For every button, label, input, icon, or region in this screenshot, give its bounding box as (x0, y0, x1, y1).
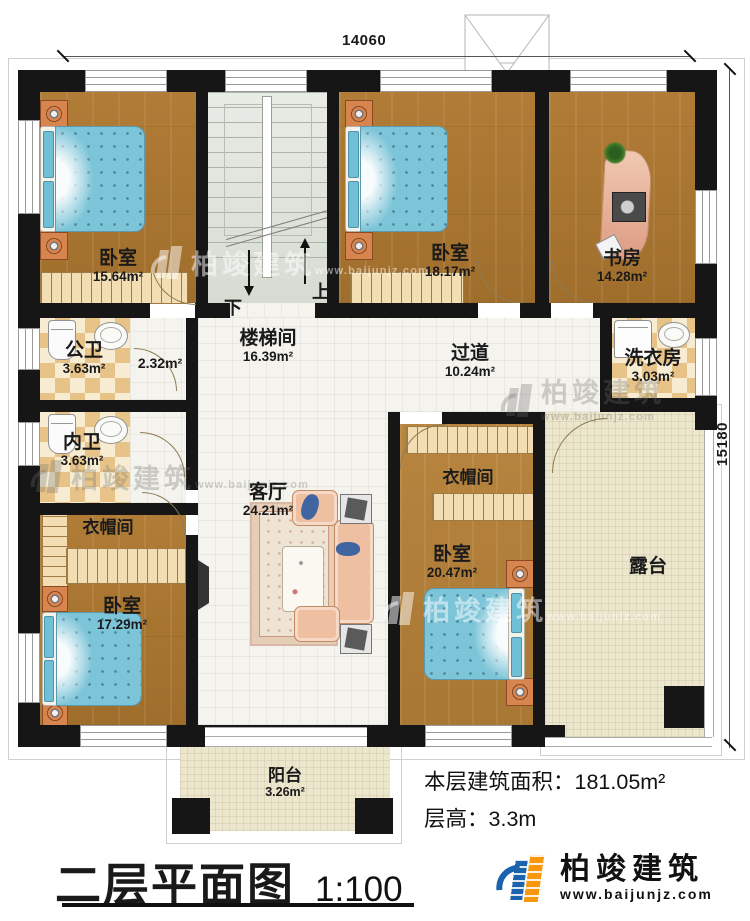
label-bedroom-bottom-left: 卧室 17.29m² (97, 596, 147, 632)
bed-pillow (43, 131, 54, 178)
window (695, 338, 717, 396)
stair-rail (262, 96, 272, 278)
label-bedroom-top-left: 卧室 15.64m² (93, 248, 143, 284)
terrace-railing (704, 430, 714, 737)
nightstand (506, 678, 534, 706)
bed-pillow (44, 616, 54, 658)
bed-pillow (348, 131, 359, 178)
stair-arrow-down (248, 250, 250, 288)
nightstand (40, 232, 68, 260)
window (18, 120, 40, 214)
person-figure (336, 542, 360, 556)
sliding-door (205, 727, 367, 747)
label-living-room: 客厅 24.21m² (243, 482, 293, 518)
label-bedroom-top-middle: 卧室 18.17m² (425, 243, 475, 279)
bed-pillow (511, 637, 522, 677)
wall (533, 412, 545, 745)
side-table (340, 494, 372, 524)
column (355, 798, 393, 834)
dimension-line-top (62, 56, 690, 57)
window (380, 70, 492, 92)
floor-plan: 柏竣建筑www.baijunjz.com 柏竣建筑www.baijunjz.co… (0, 0, 750, 921)
brand-name: 柏竣建筑 (560, 854, 713, 886)
tv (198, 560, 209, 610)
wall (535, 70, 549, 318)
title-underline (62, 903, 414, 907)
wall (442, 412, 545, 424)
window (18, 328, 40, 370)
label-cloakroom-right: 衣帽间 (443, 468, 494, 487)
roof-vent-icon (462, 12, 554, 78)
floor-height-annotation: 层高：3.3m (424, 802, 536, 833)
label-balcony: 阳台 3.26m² (265, 766, 305, 799)
label-stairwell: 楼梯间 16.39m² (239, 328, 296, 364)
plant-icon (604, 142, 626, 164)
cloak-rack (432, 493, 534, 521)
window (18, 422, 40, 466)
column (172, 798, 210, 834)
bed (55, 126, 145, 232)
cloak-rack (66, 548, 186, 584)
label-corridor: 过道 10.24m² (445, 343, 495, 379)
stair-label-up: 上 (312, 278, 330, 304)
nightstand (345, 232, 373, 260)
side-table (340, 624, 372, 654)
dimension-line-right (729, 70, 730, 748)
cloak-rack (42, 508, 68, 588)
wall (18, 303, 150, 318)
label-bath-lobby: 2.32m² (138, 356, 182, 372)
sink (658, 322, 690, 348)
stair-mouth (230, 303, 315, 318)
armchair (294, 606, 340, 642)
wall (186, 318, 198, 490)
brand-logo-icon (494, 850, 550, 906)
wall (186, 535, 198, 725)
dimension-top-value: 14060 (342, 32, 386, 49)
wall (18, 400, 186, 412)
window (425, 725, 512, 747)
nightstand (506, 560, 534, 588)
stair-arrow-up (304, 246, 306, 284)
bed-pillow (43, 181, 54, 228)
label-private-bath: 内卫 3.63m² (61, 432, 104, 468)
wall (520, 303, 551, 318)
sofa (334, 520, 374, 624)
floor-area-annotation: 本层建筑面积：181.05m² (424, 765, 665, 796)
window (225, 70, 307, 92)
bed-pillow (348, 181, 359, 228)
window (18, 633, 40, 703)
computer-monitor (612, 192, 646, 222)
label-bedroom-bottom-right: 卧室 20.47m² (427, 544, 477, 580)
label-terrace: 露台 (629, 556, 667, 577)
nightstand (42, 586, 68, 612)
window (695, 190, 717, 264)
brand-url: www.baijunjz.com (560, 886, 713, 902)
stair-label-down: 下 (224, 294, 242, 320)
label-cloakroom-left: 衣帽间 (83, 518, 134, 537)
dimension-right-value: 15180 (714, 422, 731, 466)
bed-pillow (44, 660, 54, 702)
bed-pillow (511, 593, 522, 633)
brand-logo: 柏竣建筑 www.baijunjz.com (494, 850, 713, 906)
bed (360, 126, 448, 232)
wall (388, 424, 400, 725)
nightstand (40, 100, 68, 128)
wall (196, 92, 208, 318)
wall (315, 303, 478, 318)
bed (424, 588, 510, 680)
stair-arrow-up-head (300, 238, 310, 248)
label-study: 书房 14.28m² (597, 248, 647, 284)
window (80, 725, 167, 747)
window (570, 70, 667, 92)
window (85, 70, 167, 92)
label-laundry: 洗衣房 3.03m² (624, 348, 681, 384)
coffee-table (282, 546, 324, 612)
nightstand (345, 100, 373, 128)
wall (388, 412, 400, 424)
wall (593, 303, 717, 318)
stair-arrow-down-head (244, 286, 254, 296)
wall (600, 398, 717, 412)
terrace-railing (545, 737, 712, 747)
label-public-bath: 公卫 3.63m² (63, 340, 106, 376)
